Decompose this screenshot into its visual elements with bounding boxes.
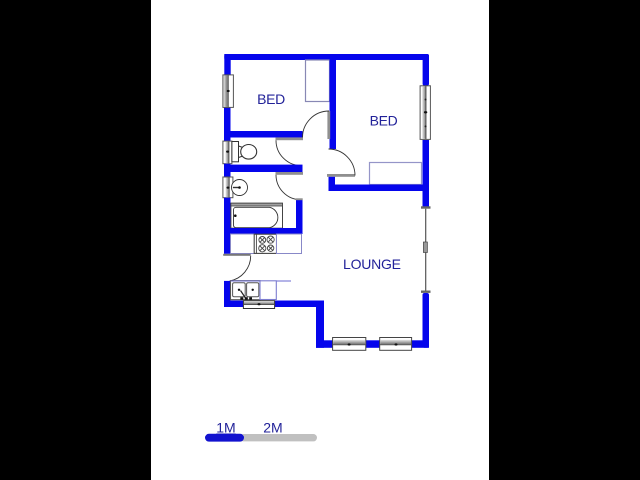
- svg-text:BED: BED: [370, 112, 398, 128]
- svg-text:BED: BED: [257, 91, 285, 107]
- svg-text:1M: 1M: [216, 420, 235, 436]
- svg-text:LOUNGE: LOUNGE: [343, 256, 401, 272]
- svg-text:2M: 2M: [263, 420, 282, 436]
